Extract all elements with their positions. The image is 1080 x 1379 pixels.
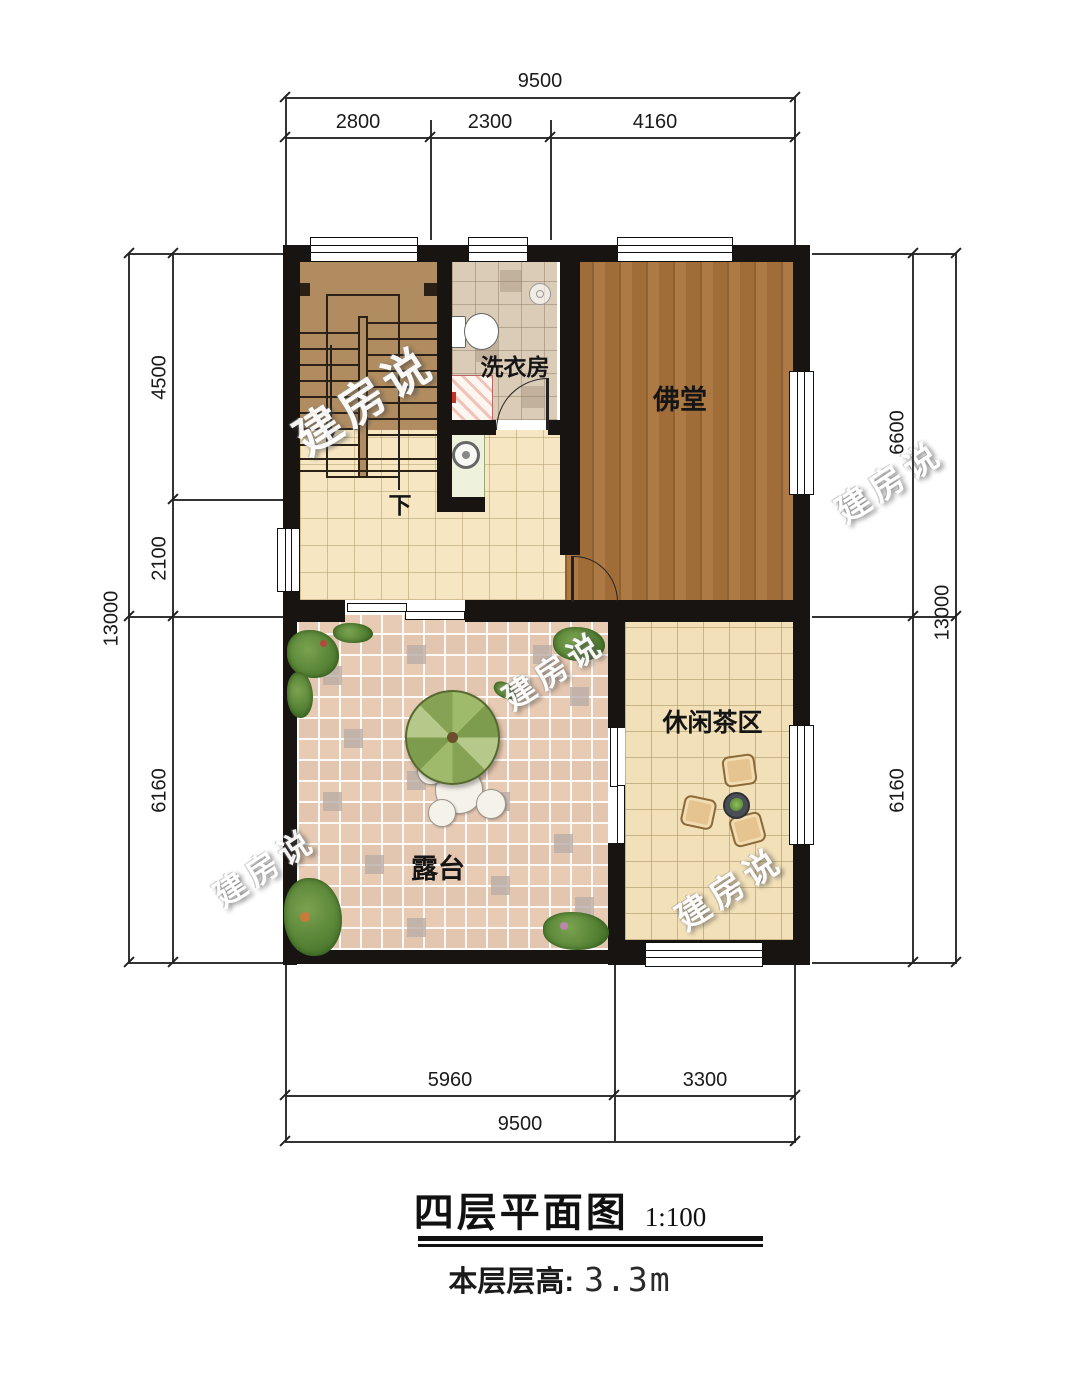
dim-witness (794, 965, 796, 1143)
dim-line-left-segments (172, 253, 174, 963)
wall-hall-south (465, 600, 810, 622)
floor-height-value: 3.3m (584, 1260, 671, 1299)
plant-icon (333, 623, 373, 643)
plant-icon (543, 912, 609, 950)
dim-label-left-total: 13000 (101, 584, 124, 654)
dim-label: 5960 (405, 1069, 495, 1092)
patio-chair-icon (476, 789, 506, 819)
stair-down-label: 下 (386, 486, 414, 520)
title-underline (418, 1236, 763, 1241)
stool-icon (721, 753, 758, 788)
tile-accent (500, 270, 522, 292)
dim-label: 6160 (149, 761, 172, 821)
stair-direction-line (398, 432, 400, 490)
scale-label: 1:100 (645, 1202, 707, 1233)
dim-label-right-total: 13000 (932, 578, 955, 648)
sliding-door-terrace (405, 611, 465, 620)
wall-laundry-south (437, 420, 496, 435)
dim-line-top-segments (285, 137, 795, 139)
wall-laundry-hall (560, 245, 580, 555)
umbrella-pole-icon (447, 732, 458, 743)
dim-label: 4500 (149, 348, 172, 408)
page-title: 四层平面图 (414, 1180, 629, 1238)
dim-witness (128, 962, 283, 964)
tile-accent (491, 876, 510, 895)
door-leaf-laundry (546, 378, 549, 430)
room-label-laundry: 洗衣房 (455, 348, 575, 382)
window-buddhist-hall-top (617, 237, 733, 262)
stair-post (424, 283, 437, 296)
floor-height-label: 本层层高: (448, 1258, 574, 1300)
door-leaf-buddhist-hall (571, 556, 574, 602)
tile-accent (407, 918, 426, 937)
dim-witness (614, 965, 616, 1143)
window-laundry (468, 237, 528, 262)
sliding-door-tea (617, 785, 625, 844)
dim-label-top-total: 9500 (490, 70, 590, 93)
dim-line-right-segments (912, 253, 914, 963)
dim-witness (285, 97, 287, 245)
dim-label: 6160 (887, 761, 910, 821)
stair-tread (300, 332, 360, 334)
room-label-buddhist-hall: 佛堂 (620, 378, 740, 417)
room-label-tea-area: 休闲茶区 (630, 703, 795, 739)
sliding-door-tea (610, 727, 618, 787)
window-tea-bottom (645, 942, 763, 967)
sliding-door-terrace (347, 603, 407, 612)
tile-accent (570, 687, 589, 706)
dim-line-left-total (128, 253, 130, 963)
tile-accent (365, 855, 384, 874)
dim-label: 6600 (887, 403, 910, 463)
buddhist-hall-floor (565, 262, 793, 602)
dim-witness (128, 253, 283, 255)
stair-tread (368, 322, 437, 324)
plant-icon (287, 672, 313, 718)
dim-line-bottom-segments (285, 1095, 795, 1097)
dim-line-top-total (285, 97, 795, 99)
window-stairwell (310, 237, 418, 262)
wall-laundry-south (548, 420, 580, 435)
dim-label-bottom-total: 9500 (475, 1113, 565, 1136)
window-tea-right (789, 725, 814, 845)
tile-accent (323, 792, 342, 811)
flower-icon (300, 912, 310, 922)
dim-label: 3300 (660, 1069, 750, 1092)
plant-icon (287, 630, 339, 678)
dim-label: 2100 (149, 529, 172, 589)
flower-icon (320, 640, 327, 647)
terrace-parapet-south (283, 950, 613, 964)
window-hallway-left (277, 528, 300, 592)
dim-witness (128, 616, 283, 618)
room-label-terrace: 露台 (393, 847, 483, 886)
dim-witness (812, 253, 957, 255)
dim-label: 2300 (450, 111, 530, 134)
toilet-bowl-icon (464, 313, 499, 350)
dim-label: 4160 (615, 111, 695, 134)
title-underline (418, 1244, 763, 1247)
tile-accent (407, 645, 426, 664)
wall-alcove (437, 497, 485, 512)
window-buddhist-hall-right (789, 371, 814, 495)
tile-accent (554, 834, 573, 853)
washing-machine-drum-icon (462, 451, 470, 459)
dim-witness (172, 499, 283, 501)
stair-tread (300, 470, 437, 472)
vent-icon (536, 290, 544, 298)
dim-line-right-total (955, 253, 957, 963)
stool-icon (679, 794, 718, 831)
tile-accent (344, 729, 363, 748)
dim-witness (285, 965, 287, 1143)
stair-tread (368, 434, 437, 436)
wall-terrace-tea (608, 615, 625, 728)
flower-icon (560, 922, 568, 930)
dim-label: 2800 (318, 111, 398, 134)
dim-line-bottom-total (285, 1141, 795, 1143)
floor-plan-canvas: 洗衣房 佛堂 休闲茶区 露台 下 建房说 建房说 建房说 建房说 建房说 950… (0, 0, 1080, 1379)
floor-height-note: 本层层高: 3.3m (390, 1258, 730, 1300)
patio-chair-icon (428, 799, 456, 827)
dim-witness (812, 962, 957, 964)
title-block: 四层平面图 1:100 (390, 1180, 730, 1230)
dim-witness (794, 97, 796, 245)
